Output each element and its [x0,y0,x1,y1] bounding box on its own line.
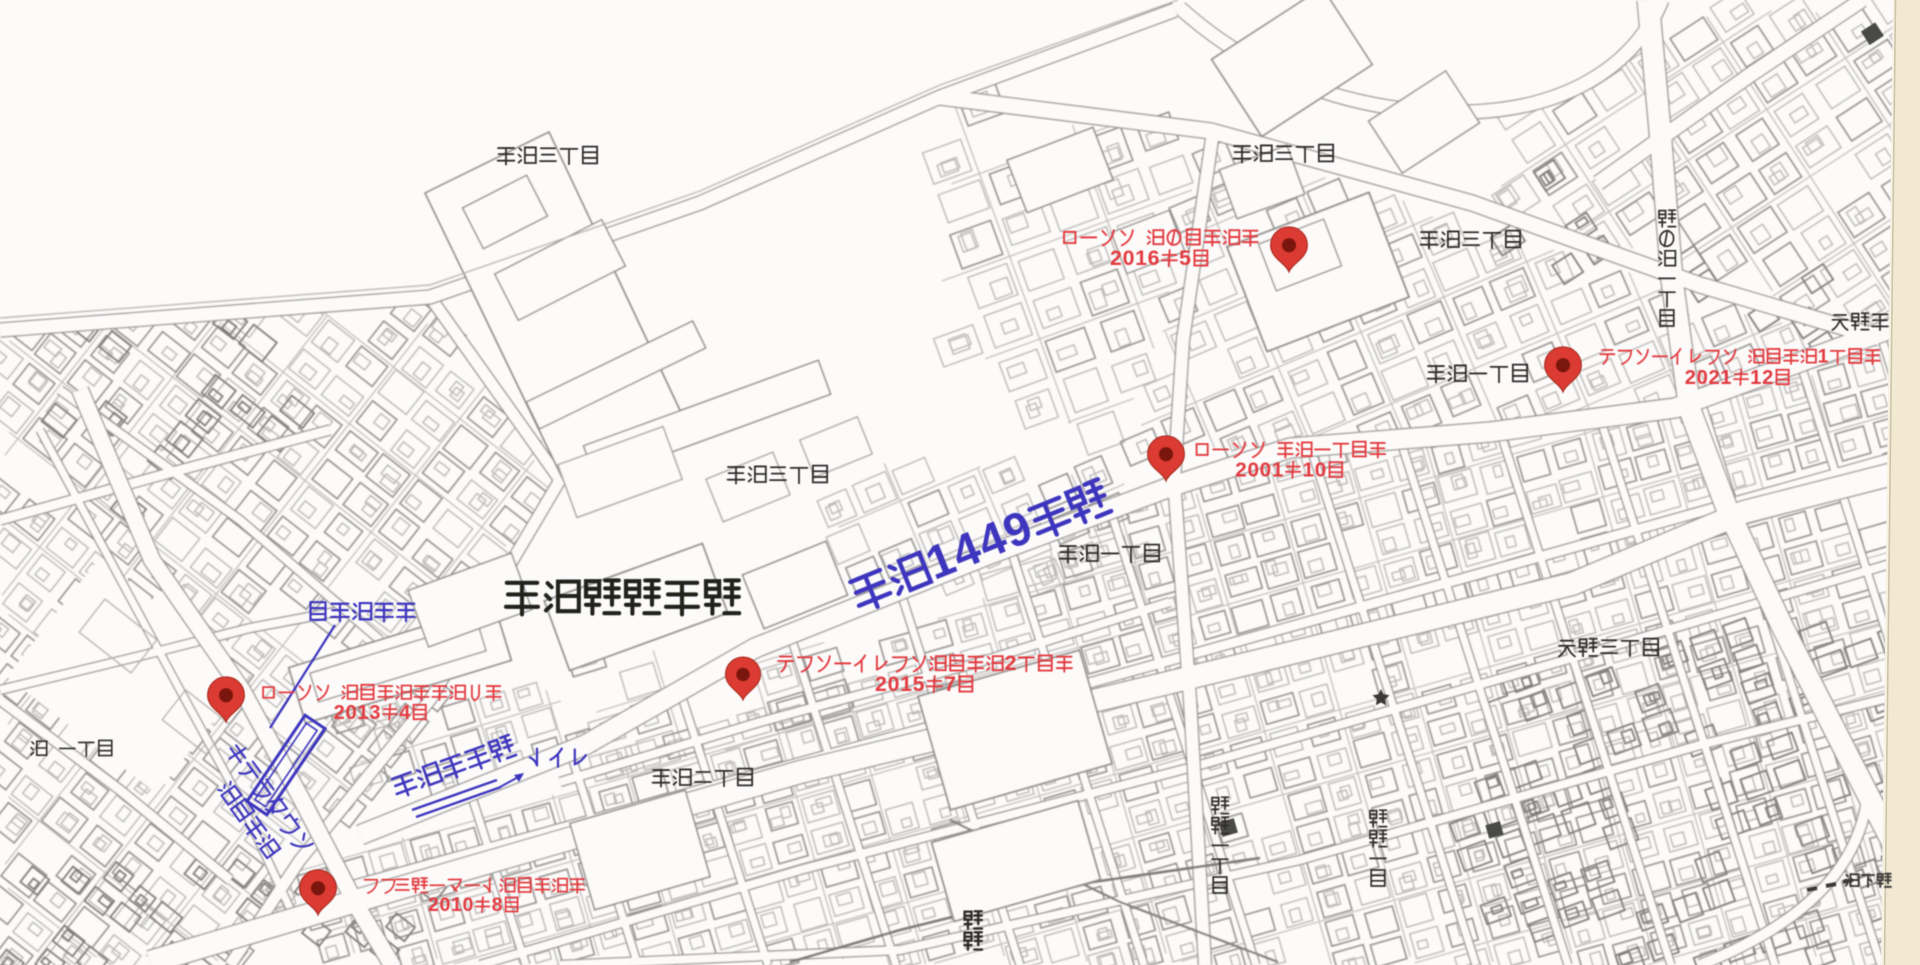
svg-text:1: 1 [357,702,368,724]
svg-text:2: 2 [428,894,439,916]
svg-text:1: 1 [1750,367,1761,389]
svg-text:1: 1 [1135,246,1147,270]
svg-text:5: 5 [1179,246,1191,270]
svg-text:0: 0 [439,894,450,916]
svg-text:2: 2 [334,702,345,724]
svg-text:5: 5 [913,672,925,696]
svg-text:8: 8 [492,894,503,916]
svg-text:6: 6 [1148,246,1160,270]
svg-text:0: 0 [1247,459,1259,482]
svg-text:1: 1 [1720,367,1731,389]
svg-text:0: 0 [1697,367,1708,389]
svg-text:3: 3 [369,702,380,724]
svg-text:1: 1 [1303,459,1315,482]
svg-text:2: 2 [1235,459,1247,482]
svg-text:4: 4 [399,702,411,724]
svg-text:2: 2 [1005,651,1017,675]
svg-text:2: 2 [1685,367,1696,389]
svg-text:1: 1 [451,894,462,916]
svg-text:0: 0 [463,894,474,916]
svg-text:2: 2 [1708,367,1719,389]
svg-text:2: 2 [1762,367,1773,389]
svg-text:0: 0 [888,672,900,696]
svg-text:1: 1 [1272,459,1284,482]
svg-text:7: 7 [944,672,956,696]
svg-text:1: 1 [900,672,912,696]
svg-text:2: 2 [875,672,887,696]
svg-text:0: 0 [1260,459,1272,482]
svg-text:2: 2 [1110,246,1122,270]
svg-text:0: 0 [1315,459,1327,482]
svg-text:1: 1 [1818,346,1829,368]
svg-text:0: 0 [1123,246,1135,270]
svg-text:0: 0 [345,702,356,724]
